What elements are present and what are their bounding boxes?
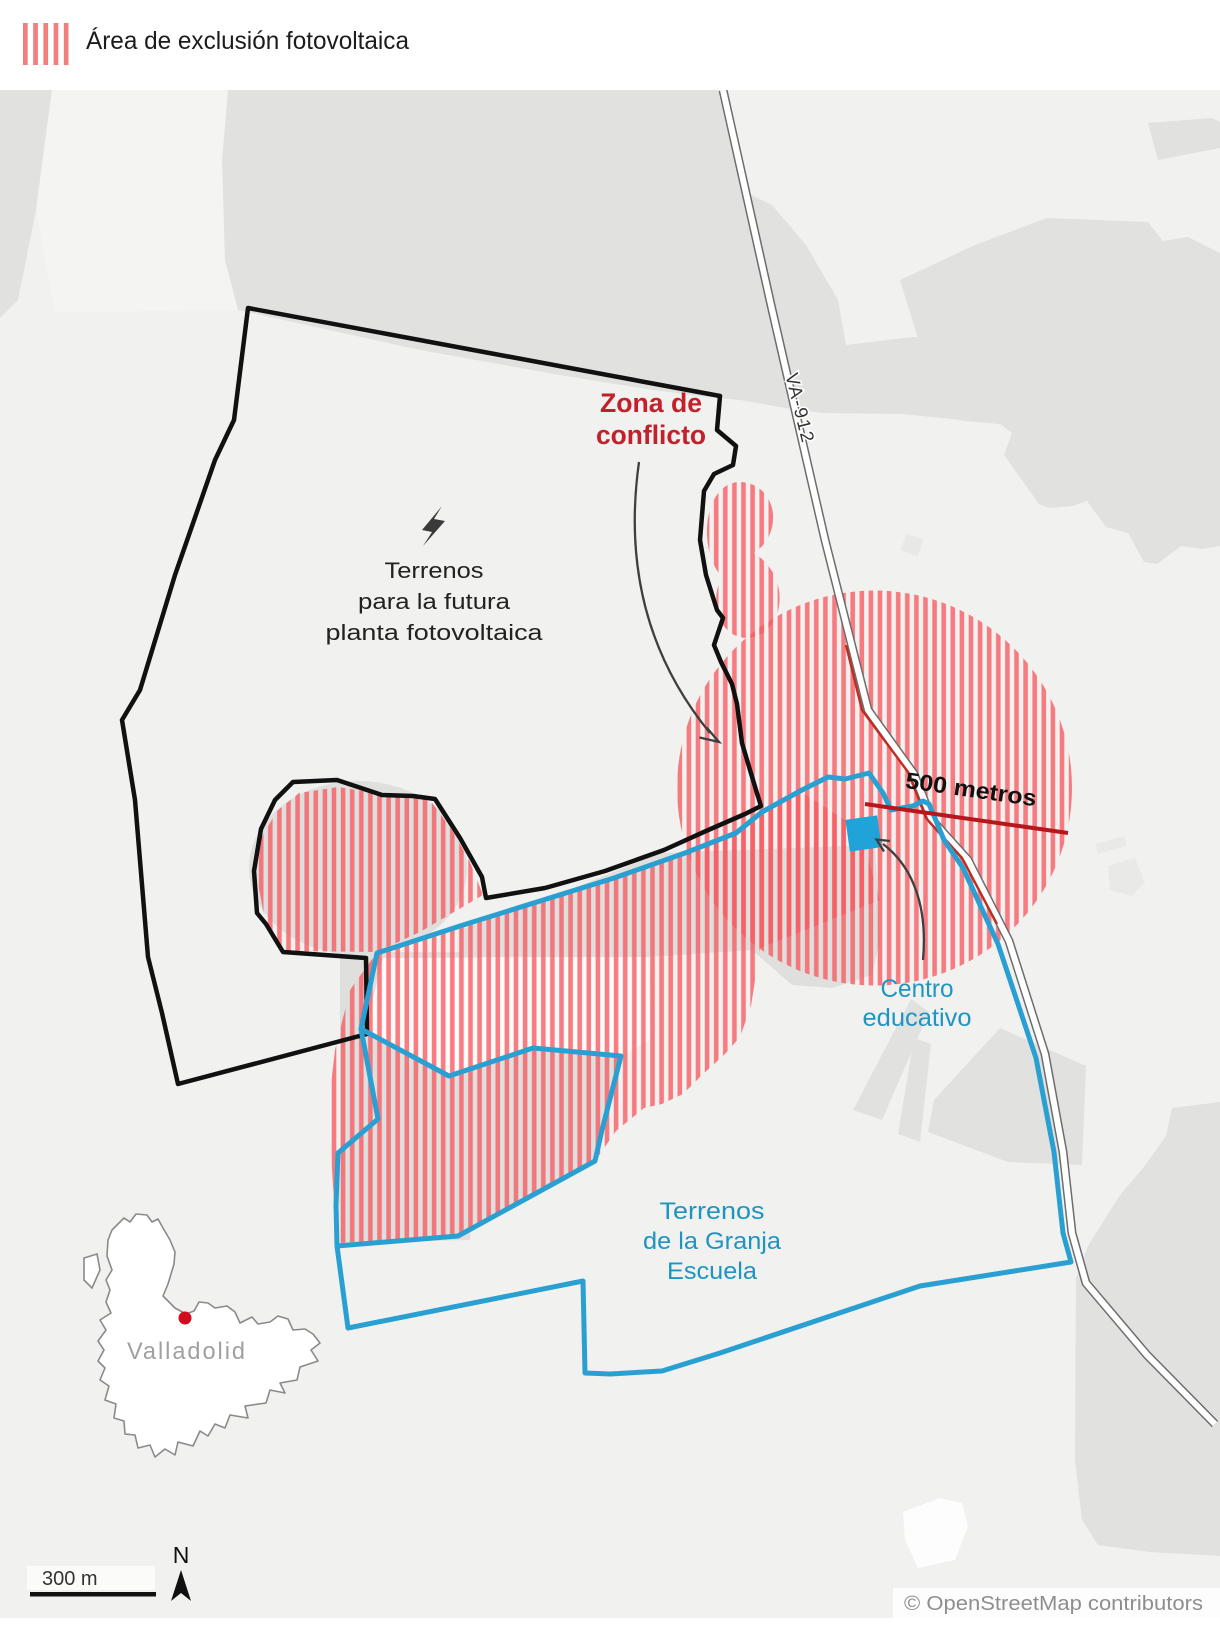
svg-text:Zona de: Zona de [600,388,702,418]
svg-text:Valladolid: Valladolid [127,1338,247,1365]
svg-text:planta fotovoltaica: planta fotovoltaica [326,620,544,645]
svg-text:educativo: educativo [863,1004,972,1032]
svg-text:© OpenStreetMap contributors: © OpenStreetMap contributors [904,1593,1203,1615]
svg-text:Escuela: Escuela [667,1258,758,1285]
svg-text:Centro: Centro [881,975,954,1003]
svg-text:Terrenos: Terrenos [385,558,484,583]
svg-text:300 m: 300 m [42,1568,98,1590]
svg-text:de la Granja: de la Granja [643,1228,782,1255]
svg-text:N: N [173,1542,190,1568]
svg-text:Área de exclusión fotovoltaica: Área de exclusión fotovoltaica [86,26,409,55]
svg-text:para la futura: para la futura [358,589,511,614]
svg-text:conflicto: conflicto [596,420,706,450]
svg-text:Terrenos: Terrenos [660,1198,765,1225]
